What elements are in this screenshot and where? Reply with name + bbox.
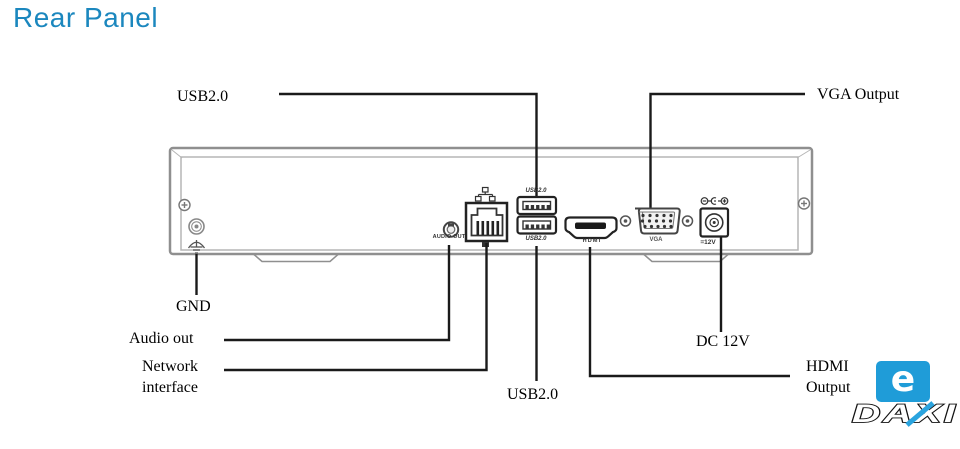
hdmi-port — [566, 218, 617, 239]
callout-network-interface: Network interface — [132, 356, 208, 398]
leader-hdmi — [590, 247, 790, 376]
usb-port-bottom — [518, 217, 557, 234]
gnd-screw — [189, 219, 204, 234]
slide: Rear Panel — [0, 0, 960, 449]
callout-dc-12v: DC 12V — [696, 332, 750, 352]
brand-text: DAXI — [852, 400, 958, 428]
chassis-foot-left — [254, 255, 338, 262]
audio-out-print: AUDIO OUT — [426, 234, 472, 240]
callout-usb-bottom: USB2.0 — [507, 385, 558, 405]
dc-power-port — [701, 209, 729, 237]
callout-usb-top: USB2.0 — [177, 87, 228, 107]
network-port — [466, 203, 507, 247]
usb-top-print: USB2.0 — [517, 188, 555, 194]
dc-print: =12V — [694, 239, 722, 246]
screw-top-left — [179, 200, 190, 211]
hdmi-print: HDMI — [570, 238, 614, 244]
callout-vga-output: VGA Output — [817, 85, 899, 105]
vga-print: VGA — [640, 237, 672, 243]
callout-network-line2: interface — [132, 377, 208, 398]
brand-monogram-letter: e — [891, 362, 915, 398]
usb-port-top — [518, 197, 557, 214]
callout-hdmi-output: HDMI Output — [806, 356, 850, 398]
vga-screw-left — [621, 216, 631, 226]
callout-hdmi-line2: Output — [806, 377, 850, 398]
brand-monogram-icon: e — [876, 361, 930, 402]
chassis-foot-right — [644, 255, 728, 262]
brand-wordmark: DAXI — [850, 400, 960, 428]
screw-right — [799, 198, 810, 209]
callout-network-line1: Network — [132, 356, 208, 377]
callout-gnd: GND — [176, 297, 211, 317]
vga-screw-right — [683, 216, 693, 226]
callout-audio-out: Audio out — [129, 329, 193, 349]
leader-audio — [224, 245, 449, 340]
callout-hdmi-line1: HDMI — [806, 356, 850, 377]
usb-bottom-print: USB2.0 — [517, 236, 555, 242]
